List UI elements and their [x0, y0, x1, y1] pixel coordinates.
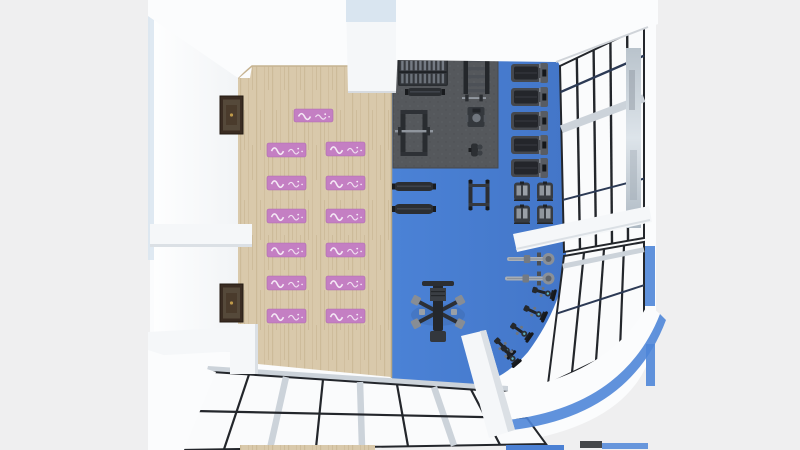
elliptical[interactable] — [537, 205, 553, 225]
flat-bench-part[interactable] — [405, 89, 408, 95]
elliptical-part[interactable] — [514, 223, 530, 225]
treadmill-part[interactable] — [539, 126, 541, 130]
treadmill-part[interactable] — [515, 96, 537, 97]
yoga-mat-part[interactable] — [328, 116, 330, 118]
yoga-mat-part[interactable] — [297, 314, 299, 316]
dumbbell-rack-part[interactable] — [419, 61, 421, 71]
yoga-mat-part[interactable] — [356, 214, 358, 216]
dumbbell-rack-part[interactable] — [400, 71, 447, 72]
rower-part[interactable] — [537, 281, 541, 286]
elliptical-part[interactable] — [546, 209, 551, 219]
dumbbell-rack-part[interactable] — [437, 61, 439, 71]
treadmill[interactable] — [511, 135, 548, 155]
elliptical-part[interactable] — [514, 183, 530, 201]
weight-bench-part[interactable] — [477, 144, 482, 149]
dip-station-part[interactable] — [469, 180, 473, 184]
yoga-mat[interactable] — [326, 176, 365, 190]
flat-bench-part[interactable] — [433, 184, 436, 190]
seated-machine-part[interactable] — [466, 115, 469, 122]
yoga-mat-part[interactable] — [301, 184, 303, 186]
bottom-edge-equipment — [580, 441, 602, 448]
treadmill[interactable] — [511, 87, 548, 107]
dumbbell-rack-part[interactable] — [410, 74, 412, 84]
yoga-mat[interactable] — [267, 143, 306, 157]
pillar-shadow — [255, 324, 258, 374]
multi-gym-part[interactable] — [451, 309, 457, 315]
treadmill[interactable] — [511, 111, 548, 131]
yoga-mat-part[interactable] — [301, 284, 303, 286]
elliptical-part[interactable] — [517, 209, 522, 219]
storage-rack-part[interactable] — [468, 75, 485, 78]
render-viewport[interactable] — [0, 0, 800, 450]
yoga-mat-part[interactable] — [301, 317, 303, 319]
squat-rack-part[interactable] — [401, 152, 428, 156]
dumbbell-rack-part[interactable] — [401, 61, 403, 71]
yoga-mat[interactable] — [326, 142, 365, 156]
seated-machine[interactable] — [466, 107, 487, 127]
yoga-mat[interactable] — [326, 243, 365, 257]
treadmill-part[interactable] — [515, 120, 537, 121]
elliptical-part[interactable] — [520, 182, 524, 185]
rower-part[interactable] — [524, 255, 531, 263]
treadmill-part[interactable] — [539, 78, 541, 82]
dumbbell-rack-part[interactable] — [433, 61, 435, 71]
elliptical[interactable] — [537, 182, 553, 202]
treadmill-part[interactable] — [542, 94, 546, 101]
facade-accent-panel — [645, 246, 655, 306]
yoga-mat-part[interactable] — [360, 217, 362, 219]
yoga-mat-part[interactable] — [356, 281, 358, 283]
flat-bench-part[interactable] — [397, 186, 431, 188]
window-reflection-smudge — [630, 150, 637, 200]
treadmill-part[interactable] — [515, 144, 537, 145]
dumbbell-rack-part[interactable] — [424, 61, 426, 71]
yoga-mat-part[interactable] — [301, 217, 303, 219]
treadmill-part[interactable] — [539, 173, 541, 177]
flat-bench[interactable] — [392, 182, 436, 191]
rower-part[interactable] — [546, 276, 552, 282]
yoga-mat-part[interactable] — [301, 251, 303, 253]
multi-gym-part[interactable] — [430, 288, 446, 301]
flat-bench-part[interactable] — [397, 208, 431, 210]
elliptical-part[interactable] — [537, 200, 553, 202]
treadmill-part[interactable] — [539, 136, 541, 140]
yoga-mat-part[interactable] — [297, 214, 299, 216]
yoga-mat[interactable] — [267, 276, 306, 290]
elliptical-part[interactable] — [520, 205, 524, 208]
barbell-part[interactable] — [479, 95, 482, 102]
weight-bench-part[interactable] — [477, 150, 482, 155]
dip-station-part[interactable] — [486, 207, 490, 211]
multi-gym-part[interactable] — [422, 281, 454, 286]
gym-render — [0, 0, 800, 450]
bottom-edge-wood — [240, 445, 375, 450]
treadmill-part[interactable] — [539, 112, 541, 116]
treadmill-part[interactable] — [542, 70, 546, 77]
treadmill-part[interactable] — [542, 142, 546, 149]
dumbbell-rack-part[interactable] — [437, 74, 439, 84]
left-ceiling-beam — [150, 224, 252, 246]
flat-bench-part[interactable] — [392, 206, 395, 212]
yoga-mat-part[interactable] — [360, 284, 362, 286]
yoga-mat-part[interactable] — [360, 150, 362, 152]
weight-bench-part[interactable] — [469, 148, 472, 152]
multi-gym-part[interactable] — [430, 331, 446, 342]
elliptical-part[interactable] — [546, 186, 551, 196]
flat-bench[interactable] — [392, 204, 436, 214]
rower-part[interactable] — [523, 275, 530, 283]
treadmill-part[interactable] — [515, 72, 537, 73]
elliptical-part[interactable] — [537, 223, 553, 225]
dumbbell-rack-part[interactable] — [410, 61, 412, 71]
multi-gym-part[interactable] — [431, 291, 445, 292]
treadmill-part[interactable] — [539, 150, 541, 154]
facade-accent-panel — [646, 344, 655, 386]
dumbbell-rack-part[interactable] — [442, 61, 444, 71]
yoga-mat-part[interactable] — [356, 248, 358, 250]
seated-machine-part[interactable] — [473, 109, 481, 113]
elliptical[interactable] — [514, 205, 530, 225]
elliptical-part[interactable] — [540, 186, 545, 196]
storage-rack-part[interactable] — [464, 56, 469, 94]
treadmill-part[interactable] — [515, 167, 537, 168]
yoga-mat-part[interactable] — [356, 147, 358, 149]
storage-rack-part[interactable] — [485, 56, 490, 94]
rower-part[interactable] — [537, 272, 541, 277]
treadmill-part[interactable] — [539, 159, 541, 163]
flat-bench-part[interactable] — [442, 89, 445, 95]
picture-frame[interactable] — [220, 96, 243, 134]
seated-machine-part[interactable] — [472, 114, 480, 122]
skylight-panel — [346, 0, 400, 22]
treadmill-part[interactable] — [542, 165, 546, 172]
elliptical[interactable] — [514, 182, 530, 202]
yoga-mat-part[interactable] — [297, 281, 299, 283]
rower-part[interactable] — [537, 253, 541, 258]
yoga-mat-part[interactable] — [324, 113, 326, 115]
yoga-mat-part[interactable] — [297, 148, 299, 150]
flat-bench-part[interactable] — [392, 184, 395, 190]
dumbbell-rack-part[interactable] — [419, 74, 421, 84]
yoga-mat-part[interactable] — [356, 314, 358, 316]
elliptical-part[interactable] — [514, 206, 530, 224]
yoga-mat[interactable] — [267, 209, 306, 223]
flat-bench[interactable] — [405, 88, 445, 96]
storage-rack-part[interactable] — [468, 67, 485, 70]
elliptical-part[interactable] — [540, 209, 545, 219]
dip-station-part[interactable] — [469, 184, 490, 187]
dumbbell-rack-part[interactable] — [424, 74, 426, 84]
elliptical-part[interactable] — [537, 183, 553, 201]
treadmill-part[interactable] — [539, 64, 541, 68]
bottom-edge-accent — [602, 443, 648, 449]
yoga-mat-part[interactable] — [360, 251, 362, 253]
yoga-mat-part[interactable] — [301, 151, 303, 153]
flat-bench-part[interactable] — [410, 91, 440, 93]
yoga-mat-part[interactable] — [297, 248, 299, 250]
left-wall-edge — [148, 0, 154, 260]
yoga-mat[interactable] — [326, 309, 365, 323]
dumbbell-rack[interactable] — [398, 58, 448, 86]
dumbbell-rack-part[interactable] — [415, 61, 417, 71]
storage-rack-part[interactable] — [468, 83, 485, 86]
treadmill-part[interactable] — [539, 102, 541, 106]
dip-station-part[interactable] — [469, 207, 473, 211]
dumbbell-rack-part[interactable] — [433, 74, 435, 84]
flat-bench-part[interactable] — [433, 206, 436, 212]
dumbbell-rack-part[interactable] — [406, 74, 408, 84]
treadmill[interactable] — [511, 63, 548, 83]
treadmill-part[interactable] — [542, 118, 546, 125]
multi-gym-part[interactable] — [419, 309, 425, 315]
dumbbell-rack-part[interactable] — [406, 61, 408, 71]
elliptical-part[interactable] — [514, 200, 530, 202]
yoga-mat-part[interactable] — [360, 184, 362, 186]
window-reflection-smudge — [629, 70, 635, 110]
elliptical-part[interactable] — [537, 206, 553, 224]
elliptical-part[interactable] — [543, 205, 547, 208]
squat-rack-part[interactable] — [426, 127, 430, 135]
yoga-mat-part[interactable] — [360, 317, 362, 319]
yoga-mat[interactable] — [267, 309, 306, 323]
treadmill[interactable] — [511, 158, 548, 178]
picture-frame-part[interactable] — [230, 301, 233, 304]
elliptical-part[interactable] — [517, 186, 522, 196]
dumbbell-rack-part[interactable] — [428, 61, 430, 71]
yoga-mat[interactable] — [267, 176, 306, 190]
bottom-edge-blue — [506, 445, 564, 450]
dip-station-part[interactable] — [486, 180, 490, 184]
elliptical-part[interactable] — [523, 209, 528, 219]
rower-part[interactable] — [546, 256, 552, 262]
window-mullion — [610, 42, 612, 244]
seated-machine-part[interactable] — [484, 115, 487, 122]
treadmill-part[interactable] — [539, 88, 541, 92]
weight-bench-part[interactable] — [471, 144, 478, 157]
yoga-mat[interactable] — [294, 109, 333, 122]
squat-rack-part[interactable] — [401, 110, 428, 114]
dumbbell-rack-part[interactable] — [401, 74, 403, 84]
bottom-left-pillar — [230, 324, 258, 374]
yoga-mat[interactable] — [326, 209, 365, 223]
picture-frame-part[interactable] — [230, 113, 233, 116]
dip-station-part[interactable] — [469, 203, 490, 206]
barbell-part[interactable] — [465, 95, 468, 102]
yoga-mat-part[interactable] — [356, 181, 358, 183]
picture-frame[interactable] — [220, 284, 243, 322]
squat-rack-part[interactable] — [398, 127, 402, 135]
elliptical-part[interactable] — [543, 182, 547, 185]
elliptical-part[interactable] — [523, 186, 528, 196]
rower-part[interactable] — [537, 261, 541, 266]
storage-rack-part[interactable] — [468, 89, 485, 92]
dumbbell-rack-part[interactable] — [428, 74, 430, 84]
dumbbell-rack-part[interactable] — [442, 74, 444, 84]
yoga-mat[interactable] — [326, 276, 365, 290]
yoga-mat[interactable] — [267, 243, 306, 257]
dumbbell-rack-part[interactable] — [415, 74, 417, 84]
multi-gym-part[interactable] — [431, 295, 445, 296]
left-beam-shadow — [150, 244, 252, 247]
yoga-mat-part[interactable] — [297, 181, 299, 183]
